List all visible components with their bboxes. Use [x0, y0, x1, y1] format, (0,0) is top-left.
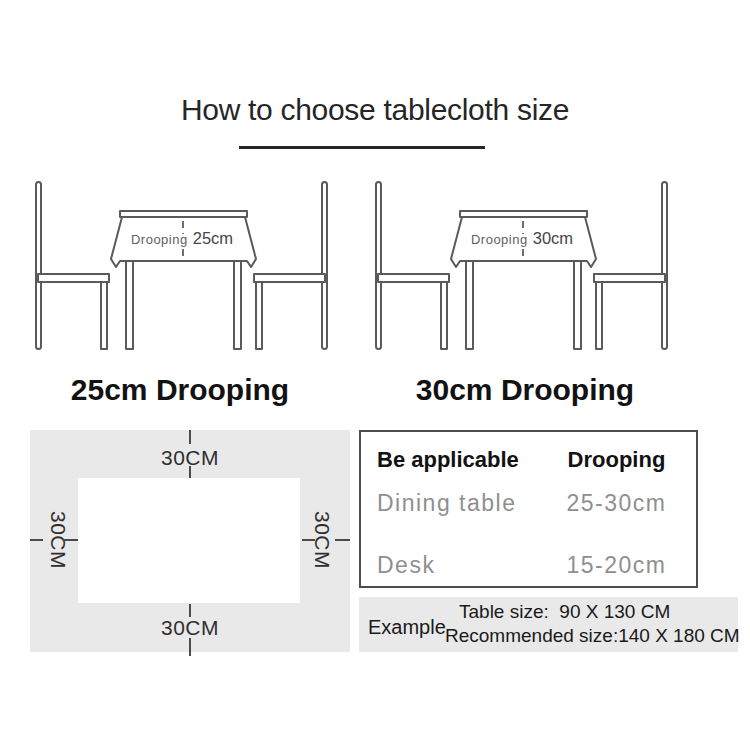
title-underline	[239, 146, 485, 149]
tick-dash-right	[302, 539, 315, 541]
spec-table-row-desk: Desk 15-20cm	[361, 552, 696, 580]
table-illustration-25cm: Drooping25cm	[24, 172, 339, 357]
right-chair-drawing	[254, 182, 327, 349]
tick-dash-top	[189, 430, 191, 444]
drooping-annotation: Drooping30cm	[471, 229, 573, 247]
example-strip: Example Table size: 90 X 130 CM Recommen…	[359, 597, 738, 652]
table-with-tablecloth-drawing: Drooping30cm	[451, 211, 596, 349]
tick-dash-right	[335, 539, 350, 541]
tablecloth-size-infographic: How to choose tablecloth size Drooping25…	[0, 0, 750, 750]
table-illustration-30cm: Drooping30cm	[364, 172, 679, 357]
example-table-size: Table size: 90 X 130 CM	[459, 601, 670, 623]
row-label: Desk	[377, 552, 435, 579]
example-recommended-size: Recommended size:140 X 180 CM	[445, 625, 740, 647]
example-label: Example	[368, 616, 446, 639]
right-chair-drawing	[594, 182, 667, 349]
row-label: Dining table	[377, 490, 516, 517]
tick-dash-left	[63, 539, 78, 541]
drooping-word: Drooping	[471, 232, 528, 247]
drooping-measure: 25cm	[193, 229, 233, 247]
tick-dash-bottom	[189, 604, 191, 617]
drooping-measure: 30cm	[533, 229, 573, 247]
table-with-tablecloth-drawing: Drooping25cm	[111, 211, 256, 349]
size-diagram-panel: 30CM 30CM 30CM 30CM	[30, 430, 350, 652]
spec-table-row-dining: Dining table 25-30cm	[361, 490, 696, 518]
row-value: 15-20cm	[553, 552, 680, 579]
drooping-word: Drooping	[131, 232, 188, 247]
table-surface-rect	[78, 478, 300, 603]
tick-dash-top	[189, 466, 191, 478]
tick-dash-bottom	[189, 638, 191, 656]
tick-dash-left	[30, 539, 43, 541]
header-drooping: Drooping	[553, 447, 680, 473]
caption-25cm-drooping: 25cm Drooping	[68, 373, 292, 407]
page-title: How to choose tablecloth size	[0, 93, 750, 127]
left-chair-drawing	[376, 182, 449, 349]
dimension-label-bottom: 30CM	[140, 616, 240, 640]
drooping-annotation: Drooping25cm	[131, 229, 233, 247]
drooping-spec-table: Be applicable Drooping Dining table 25-3…	[359, 430, 698, 588]
row-value: 25-30cm	[553, 490, 680, 517]
caption-30cm-drooping: 30cm Drooping	[413, 373, 637, 407]
left-chair-drawing	[36, 182, 109, 349]
spec-table-header-row: Be applicable Drooping	[361, 447, 696, 475]
header-be-applicable: Be applicable	[377, 447, 519, 473]
